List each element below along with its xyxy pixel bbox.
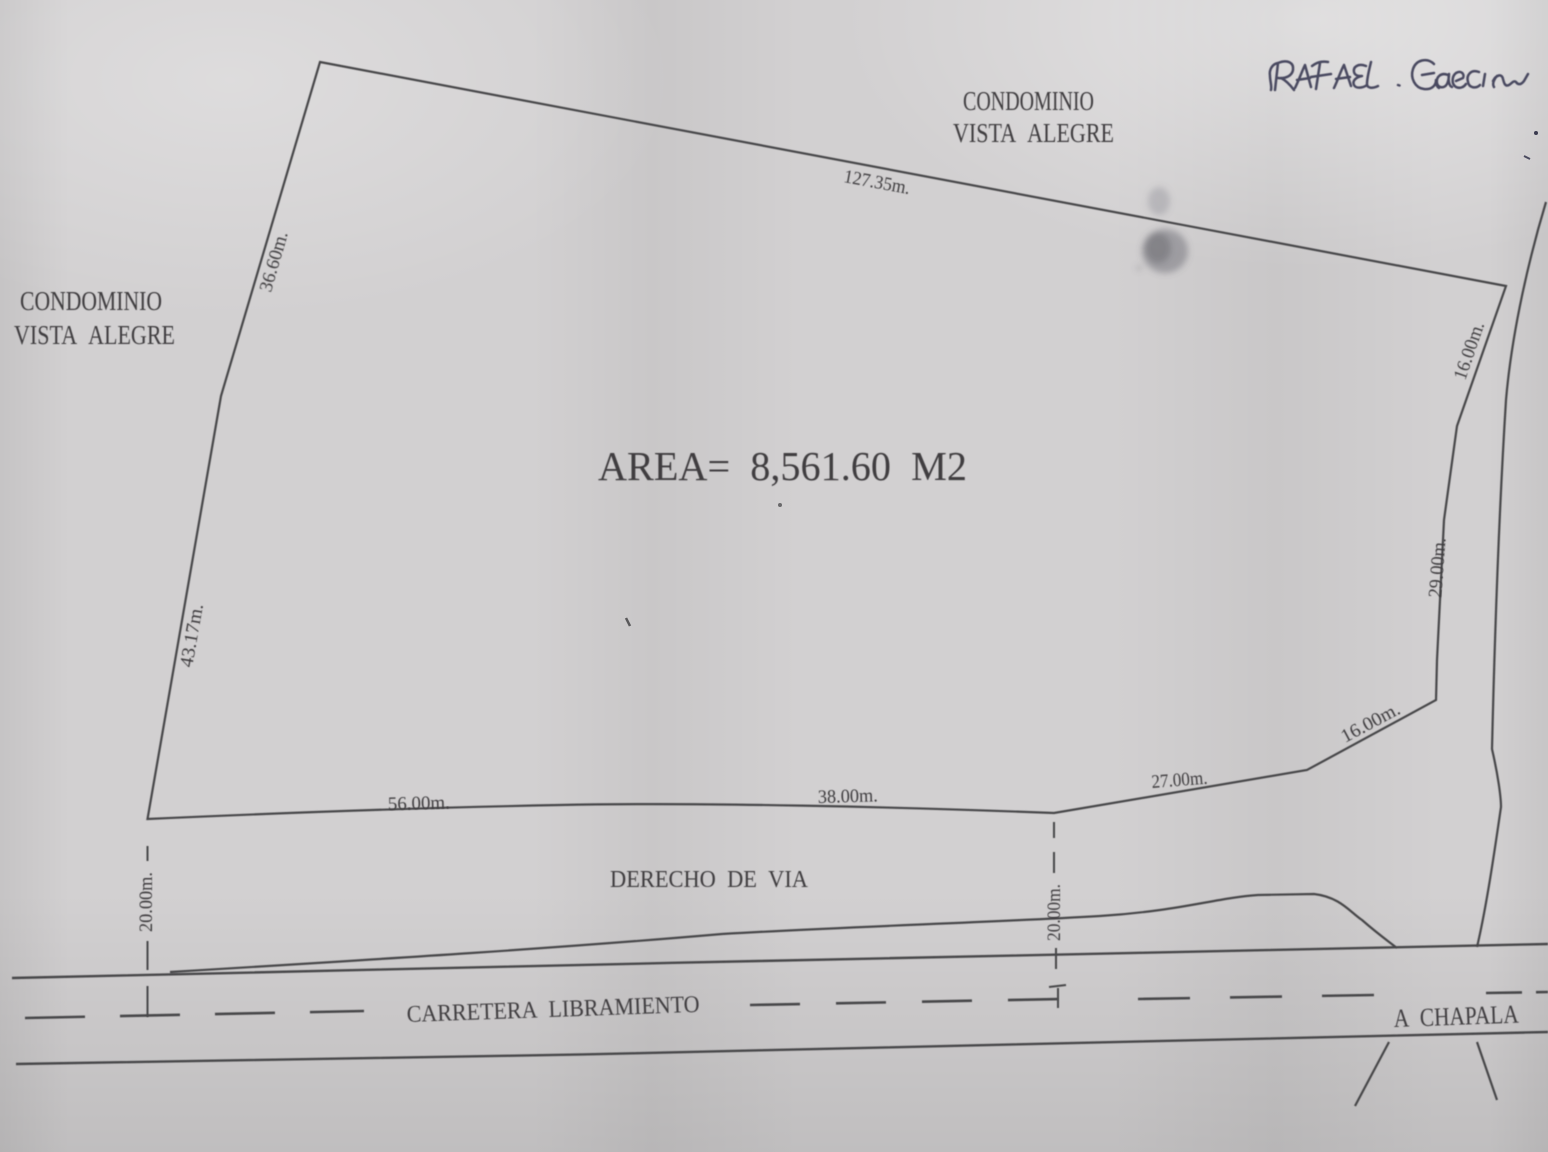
svg-text:27.00m.: 27.00m. — [1151, 768, 1208, 793]
svg-text:43.17m.: 43.17m. — [176, 602, 208, 669]
svg-text:CONDOMINIO: CONDOMINIO — [20, 286, 162, 316]
svg-text:20.00m.: 20.00m. — [1044, 884, 1065, 941]
svg-text:DERECHO DE VIA: DERECHO DE VIA — [610, 867, 809, 893]
svg-text:VISTA ALEGRE: VISTA ALEGRE — [14, 320, 175, 350]
svg-text:VISTA ALEGRE: VISTA ALEGRE — [953, 118, 1114, 148]
svg-text:CARRETERA LIBRAMIENTO: CARRETERA LIBRAMIENTO — [406, 992, 700, 1028]
svg-text:38.00m.: 38.00m. — [818, 785, 879, 808]
svg-text:29.00m.: 29.00m. — [1425, 537, 1451, 598]
svg-text:AREA= 8,561.60 M2: AREA= 8,561.60 M2 — [598, 443, 967, 489]
svg-text:20.00m.: 20.00m. — [136, 872, 157, 932]
svg-text:CONDOMINIO: CONDOMINIO — [963, 86, 1094, 116]
svg-text:A CHAPALA: A CHAPALA — [1393, 1000, 1519, 1033]
svg-text:56.00m.: 56.00m. — [388, 792, 451, 815]
